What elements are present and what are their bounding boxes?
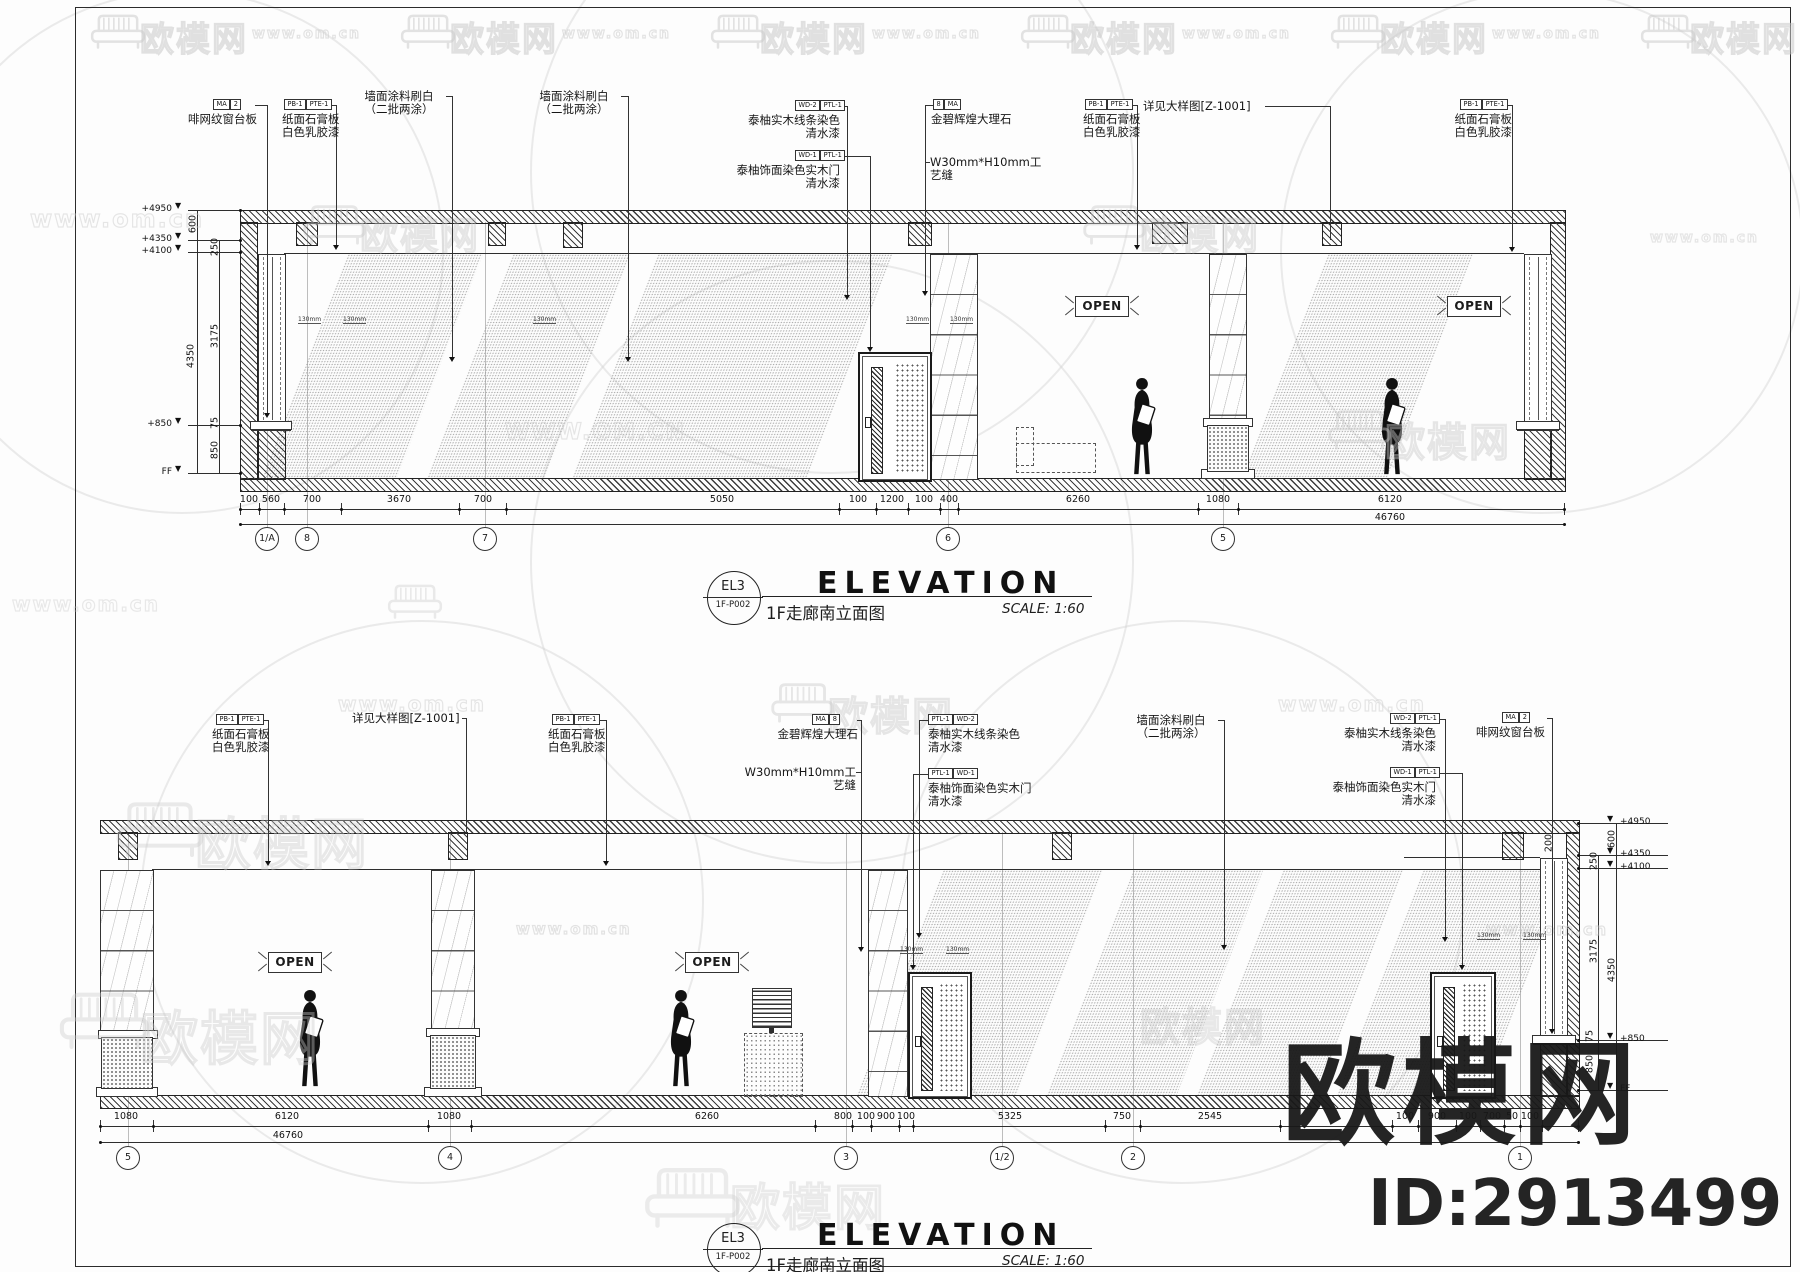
level-label: +850 [147,419,172,429]
leader-line-h [925,105,933,106]
leader-line-v [861,720,862,948]
watermark-brand-text: 欧模网 [1380,12,1488,61]
sofa-logo-icon [398,10,458,50]
level-label: +4350 [142,234,172,244]
grid-bubble: 4 [438,1146,462,1170]
overall-dim-line [240,524,1564,525]
level-dot [239,239,242,242]
leader-line-v [1512,105,1513,248]
callout-label: （二批两涂） [527,103,621,116]
stone-pedestal [744,1033,803,1097]
sofa-logo-icon [1325,405,1394,451]
level-label: +4950 [1620,817,1650,827]
vdim-label: 3175 [210,324,221,348]
sofa-logo-icon [1080,200,1149,246]
wood-door [858,352,932,482]
watermark-brand-text: 欧模网 [140,12,248,61]
callout-label: 白色乳胶漆 [282,126,348,139]
joint-note: 130mm [533,316,556,324]
material-tag: WD-1 [953,768,978,779]
dim-tick-dot [875,508,878,511]
level-label: +4100 [142,246,172,256]
joint-note: 130mm [1477,932,1500,940]
level-dot [239,251,242,254]
dim-tick-dot [1237,508,1240,511]
material-tag: PTE-1 [1107,99,1133,110]
watermark-brand-text: 欧模网 [760,12,868,61]
dim-tick-dot [1197,508,1200,511]
material-tag-row: WD-2PTL-1 [795,100,845,111]
callout-label: 金碧辉煌大理石 [774,728,858,741]
end-wall-left [240,222,258,480]
dim-label: 6120 [1378,494,1402,505]
leader-arrow [603,861,609,866]
level-dot [239,209,242,212]
material-tag: PTE-1 [238,714,264,725]
callout-label: 清水漆 [928,795,1040,808]
material-tag: WD-2 [1390,713,1415,724]
vdim-line [197,210,198,473]
leader-arrow [858,947,864,952]
watermark-url-text: www.om.cn [1182,26,1291,42]
leader-arrow [449,357,455,362]
sofa-logo-icon [112,795,208,859]
dim-label: 3670 [387,494,411,505]
leader-line-h [856,772,861,773]
window [258,254,286,423]
watermark-url-text: WWW.OM.CN [505,420,686,445]
material-tag: MA [812,714,829,725]
column-stone-base [430,1035,476,1089]
column-shaft [1209,254,1247,421]
leader-arrow [1459,965,1465,970]
level-label: +4950 [142,204,172,214]
open-sign: OPEN [1447,296,1501,317]
beam [448,832,468,860]
callout-label: 啡网纹窗台板 [1476,726,1554,739]
dim-label: 6120 [275,1111,299,1122]
vdim-label: 250 [1589,852,1600,870]
callout-label: （二批两涂） [1124,727,1218,740]
joint-note: 130mm [906,316,929,324]
callout-label: 清水漆 [732,177,840,190]
dim-tick-dot [957,508,960,511]
dim-label: 1080 [1206,494,1230,505]
material-tag: 2 [1519,712,1530,723]
dim-tick-dot [239,508,242,511]
level-line [188,473,240,474]
material-tag: PTL-1 [820,150,845,161]
callout-label: 白色乳胶漆 [548,741,614,754]
leader-line-v [267,105,268,414]
dim-tick-dot [470,1125,473,1128]
material-tag: WD-1 [1390,767,1415,778]
watermark-brand-text: 欧模网 [1690,12,1798,61]
level-triangle-icon: ▼ [1607,814,1613,823]
material-tag-row: 8MA [933,99,961,110]
detail-sheet-ref: 1F-P002 [707,600,759,610]
watermark-url-text: www.om.cn [516,920,632,938]
material-tag-row: PB-1PTE-1 [1460,99,1508,110]
watermark-brand-text: 欧模网 [1070,12,1178,61]
beam [563,222,583,248]
vdim-label: 4350 [186,344,197,368]
material-tag: PTL-1 [1415,767,1440,778]
site-watermark-id: ID:2913499 [1368,1172,1782,1236]
drawing-name: 1F走廊南立面图 [766,1252,885,1272]
dim-tick-dot [814,1125,817,1128]
sofa-logo-icon [300,200,369,246]
dim-tick-dot [99,1125,102,1128]
vdim-label: 250 [210,238,221,256]
watermark-brand-text: 欧模网 [1140,995,1266,1053]
dim-label: 2545 [1198,1111,1222,1122]
dim-label: 800 [834,1111,852,1122]
watermark-brand-text: 欧模网 [195,800,369,881]
dim-label: 5325 [998,1111,1022,1122]
drawing-sheet: 欧模网 欧模网 欧模网 欧模网 欧模网 [0,0,1800,1272]
callout-label: 啡网纹窗台板 [188,113,266,126]
leader-line-v [1462,773,1463,966]
level-triangle-icon: ▼ [175,416,181,425]
material-tag: PB-1 [1460,99,1482,110]
column-stone-base [1207,425,1249,472]
level-dot [239,424,242,427]
column-shaft [431,870,475,1030]
leader-line-v [919,720,920,934]
level-dot [239,472,242,475]
material-tag-row: PB-1PTE-1 [1085,99,1133,110]
grid-bubble: 1/2 [990,1146,1014,1170]
leader-arrow [867,347,873,352]
dim-tick-dot [458,508,461,511]
material-tag-row: WD-1PTL-1 [1390,767,1440,778]
level-dot [1577,822,1580,825]
callout-label: 清水漆 [928,741,1032,754]
watermark-brand-text: 欧模网 [140,992,320,1076]
level-dot [1577,867,1580,870]
watermark-url-text: www.om.cn [872,26,981,42]
watermark-url-text: www.om.cn [562,26,671,42]
leader-arrow [916,933,922,938]
vdim-label: 3175 [1589,939,1600,963]
material-tag: MA [944,99,961,110]
material-tag-row: PTL-1WD-1 [928,768,978,779]
level-label: +4350 [1620,849,1650,859]
dim-tick-dot [912,1125,915,1128]
sofa-logo-icon [88,10,148,50]
grid-bubble: 1/A [255,527,279,551]
leader-arrow [1134,245,1140,250]
window-sill [250,421,292,430]
soffit-line [1404,857,1540,858]
level-triangle-icon: ▼ [175,231,181,240]
drawing-scale: SCALE: 1:60 [1002,601,1084,617]
leader-line-v [925,105,926,292]
grid-bubble: 5 [1211,527,1235,551]
material-tag-row: PB-1PTE-1 [552,714,600,725]
joint-note: 130mm [900,946,923,954]
wall-below-window [258,428,286,480]
watermark-url-text: www.om.cn [12,592,160,616]
level-dot [1577,854,1580,857]
dim-label: 1200 [880,494,904,505]
level-triangle-icon: ▼ [175,464,181,473]
leader-arrow [1221,945,1227,950]
leader-arrow [1442,937,1448,942]
wall-below-window [1524,428,1552,480]
callout-label: 详见大样图[Z-1001] [352,712,462,725]
overall-dot [239,523,242,526]
callout-label: （二批两涂） [352,103,446,116]
leader-line-h [255,105,267,106]
material-tag: PB-1 [1085,99,1107,110]
drawing-scale: SCALE: 1:60 [1002,1253,1084,1269]
joint-note: 130mm [343,316,366,324]
site-watermark-brand: 欧模网 [1282,1038,1642,1152]
vdim-label: 4350 [1607,958,1618,982]
material-tag: PTE-1 [574,714,600,725]
material-tag: PB-1 [552,714,574,725]
leader-line-v [870,156,871,348]
leader-arrow [1509,247,1515,252]
watermark-url-text: www.om.cn [1650,230,1759,246]
marble-pilaster [868,870,908,1097]
dim-label: 1080 [114,1111,138,1122]
material-tag-row: WD-1PTL-1 [795,150,845,161]
beam [1052,832,1072,860]
dim-label: 100 [915,494,933,505]
overall-dot [99,1141,102,1144]
material-tag: 2 [230,99,241,110]
callout-label: 白色乳胶漆 [1083,126,1149,139]
watermark-url-text: www.om.cn [1492,26,1601,42]
window [1540,858,1568,1037]
grid-bubble: 8 [295,527,319,551]
sofa-logo-icon [385,580,445,620]
material-tag-row: PB-1PTE-1 [284,99,332,110]
dim-tick-dot [340,508,343,511]
vdim-label: 600 [188,215,199,233]
dim-tick-dot [258,508,261,511]
dim-label: 700 [303,494,321,505]
dim-label: 100 [897,1111,915,1122]
vdim-label: 200 [1544,834,1555,852]
dim-tick-dot [152,1125,155,1128]
dim-tick-dot [907,508,910,511]
dim-label: 560 [262,494,280,505]
vdim-label: 75 [210,417,221,429]
material-tag: PTL-1 [1415,713,1440,724]
dim-tick-dot [870,1125,873,1128]
grid-bubble: 3 [834,1146,858,1170]
leader-arrow [625,357,631,362]
dim-label: 6260 [1066,494,1090,505]
joint-note: 130mm [298,316,321,324]
material-tag: 8 [933,99,944,110]
watermark-url-text: www.om.cn [1486,920,1608,939]
material-tag: WD-2 [795,100,820,111]
dim-tick-dot [851,1125,854,1128]
dim-label: 100 [240,494,258,505]
watermark-brand-text: 欧模网 [360,205,480,260]
person-figure [661,988,699,1092]
material-tag-row: WD-2PTL-1 [1390,713,1440,724]
material-tag: PTE-1 [306,99,332,110]
beam [488,222,506,246]
window [1524,254,1552,423]
grid-bubble: 6 [936,527,960,551]
dim-tick-dot [283,508,286,511]
open-sign: OPEN [268,952,322,973]
window-sill [1516,421,1560,430]
beam [908,222,932,246]
material-tag-row: PB-1PTE-1 [216,714,264,725]
leader-line-v [1552,718,1553,1030]
beam [1322,222,1342,246]
marble-pilaster [930,254,978,480]
level-triangle-icon: ▼ [175,243,181,252]
material-tag-row: MA2 [213,99,241,110]
overall-dim-label: 46760 [1375,512,1405,523]
dim-tick-dot [838,508,841,511]
material-tag-row: MA2 [1502,712,1530,723]
leader-line-v [1224,720,1225,946]
callout-label: 清水漆 [1328,794,1436,807]
overall-dot [1563,523,1566,526]
leader-arrow [844,295,850,300]
detail-code: EL3 [707,579,759,594]
dim-tick-dot [1563,508,1566,511]
material-tag: PB-1 [216,714,238,725]
leader-line-v [913,774,914,966]
leader-line-h [913,774,928,775]
callout-label: 详见大样图[Z-1001] [1143,100,1265,113]
drawing-heading: ELEVATION [817,1218,1064,1253]
leader-arrow [910,965,916,970]
grid-bubble: 7 [473,527,497,551]
dim-label: 100 [857,1111,875,1122]
watermark-brand-text: 欧模网 [450,12,558,61]
dim-tick-dot [939,508,942,511]
dim-label: 100 [849,494,867,505]
callout-label: 金碧辉煌大理石 [931,113,1015,126]
dim-label: 6260 [695,1111,719,1122]
callout-label: 清水漆 [742,127,840,140]
sofa-logo-icon [1638,10,1698,50]
leader-line-v [452,96,453,358]
dim-label: 400 [940,494,958,505]
leader-arrow [333,245,339,250]
leader-line-v [1445,719,1446,938]
dim-label: 5050 [710,494,734,505]
table-lamp [752,988,792,1028]
watermark-url-text: www.om.cn [252,26,361,42]
vdim-line [219,240,220,473]
bench-seat [1016,443,1096,473]
material-tag: MA [1502,712,1519,723]
material-tag: WD-2 [953,714,978,725]
level-label: +4100 [1620,862,1650,872]
leader-arrow [922,291,928,296]
dim-tick-dot [1104,1125,1107,1128]
material-tag: PTL-1 [820,100,845,111]
end-wall-right [1550,222,1566,480]
material-tag: PTL-1 [928,768,953,779]
open-sign: OPEN [1075,296,1129,317]
leader-arrow [264,413,270,418]
level-triangle-icon: ▼ [1607,859,1613,868]
callout-label: 清水漆 [1336,740,1436,753]
watermark-brand-text: 欧模网 [1140,205,1260,260]
grid-bubble: 5 [116,1146,140,1170]
material-tag: PTE-1 [1482,99,1508,110]
callout-label: 白色乳胶漆 [212,741,278,754]
dim-label: 900 [877,1111,895,1122]
leader-line-h [919,720,928,721]
beam [1502,832,1524,860]
leader-line-v [847,106,848,296]
material-tag: PB-1 [284,99,306,110]
leader-line-v [1330,106,1331,240]
callout-label: 白色乳胶漆 [1446,126,1512,139]
sofa-logo-icon [1328,10,1388,50]
dim-label: 750 [1113,1111,1131,1122]
detail-code: EL3 [707,1231,759,1246]
material-tag: 8 [829,714,840,725]
drawing-heading: ELEVATION [817,566,1064,601]
detail-sheet-ref: 1F-P002 [707,1252,759,1262]
material-tag: WD-1 [795,150,820,161]
person-figure [1122,376,1160,480]
dim-tick-dot [898,1125,901,1128]
material-tag: MA [213,99,230,110]
joint-note: 130mm [1523,932,1546,940]
overall-dim-label: 46760 [273,1130,303,1141]
material-tag-row: PTL-1WD-2 [928,714,978,725]
grid-bubble: 2 [1121,1146,1145,1170]
drawing-name: 1F走廊南立面图 [766,600,885,624]
leader-arrow [265,861,271,866]
callout-label: W30mm*H10mm工艺缝 [734,766,856,792]
level-triangle-icon: ▼ [175,201,181,210]
material-tag-row: MA8 [812,714,840,725]
wood-door [908,972,972,1099]
sofa-logo-icon [1018,10,1078,50]
leader-line-h [621,96,628,97]
leader-line-h [1265,106,1330,107]
dim-line [240,509,1564,510]
dim-tick-dot [505,508,508,511]
level-label: FF [162,467,172,477]
joint-note: 130mm [950,316,973,324]
watermark-brand-text: 欧模网 [1385,410,1511,468]
dim-label: 1080 [437,1111,461,1122]
open-sign: OPEN [685,952,739,973]
joint-note: 130mm [946,946,969,954]
vdim-label: 850 [210,441,221,459]
dim-label: 700 [474,494,492,505]
dim-tick-dot [427,1125,430,1128]
leader-line-v [628,96,629,358]
material-tag: PTL-1 [928,714,953,725]
vdim-label: 600 [1607,830,1618,848]
sofa-logo-icon [708,10,768,50]
dim-tick-dot [1139,1125,1142,1128]
callout-label: W30mm*H10mm工艺缝 [930,156,1052,182]
leader-line-v [466,718,467,833]
